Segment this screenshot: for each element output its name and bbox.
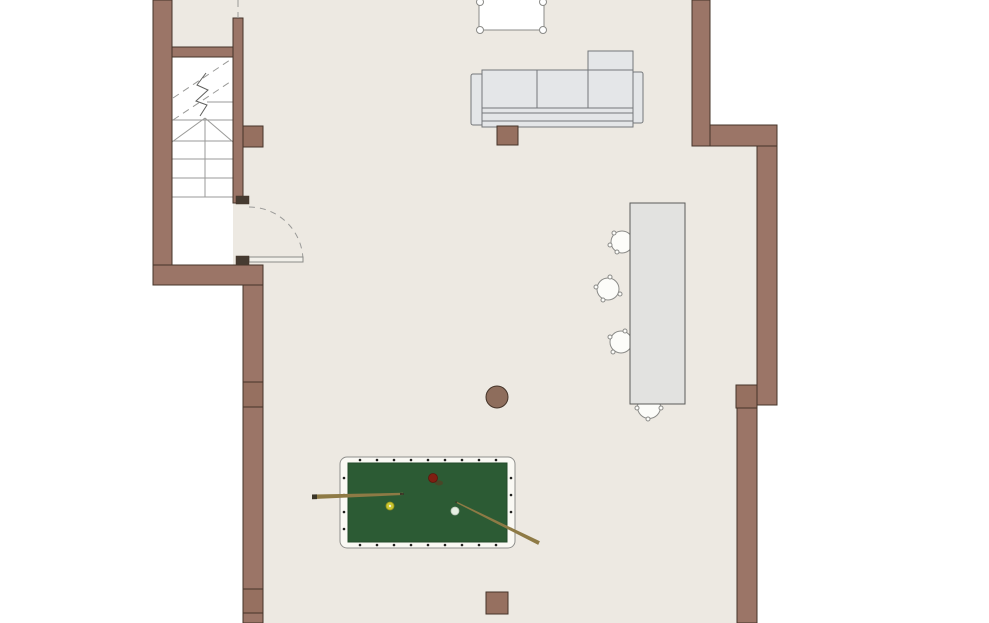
billiard-cue-ball	[451, 507, 459, 515]
floor-plan-canvas: Floor plan — recreation level with stair…	[0, 0, 989, 623]
door-jamb-cap	[236, 196, 249, 204]
cue-stick-left-butt	[312, 494, 317, 499]
door-hinge	[236, 256, 249, 265]
table-leg	[477, 0, 484, 6]
billiard-table	[340, 457, 515, 548]
stair-right-wall	[233, 18, 243, 203]
outer-wall-left	[153, 0, 172, 265]
wall-column	[243, 589, 263, 613]
cue-stick-right-tip	[455, 501, 457, 503]
sofa-body	[482, 70, 633, 127]
wall-column	[243, 126, 263, 147]
billiard-felt	[348, 463, 507, 542]
table-leg	[540, 27, 547, 34]
outer-wall-left-lower	[243, 285, 263, 623]
cue-stick-left-tip	[400, 493, 404, 495]
wall-column	[243, 382, 263, 407]
support-column-round	[486, 386, 508, 408]
table-leg	[540, 0, 547, 6]
support-column-square	[497, 126, 518, 145]
billiard-ball-red	[429, 474, 438, 483]
outer-wall-right-jog	[710, 125, 777, 146]
top-table	[477, 0, 547, 34]
stairwell	[172, 57, 233, 265]
sofa-armrest-left	[471, 74, 483, 125]
outer-wall-right-mid	[757, 146, 777, 405]
top-table-surface	[479, 0, 544, 30]
outer-wall-bottom-left	[153, 265, 263, 285]
sofa-armrest-right	[632, 72, 643, 123]
door-leaf	[249, 257, 303, 262]
table-leg	[477, 27, 484, 34]
dining-table	[630, 203, 685, 404]
billiard-ball-yellow-highlight	[389, 505, 391, 507]
outer-wall-right-lower	[737, 408, 757, 623]
stair-top-wall	[172, 47, 243, 57]
outer-wall-right-upper	[692, 0, 710, 146]
floor-plan-svg: Floor plan — recreation level with stair…	[0, 0, 989, 623]
support-column-square-bottom	[486, 592, 508, 614]
wall-column	[736, 385, 757, 408]
